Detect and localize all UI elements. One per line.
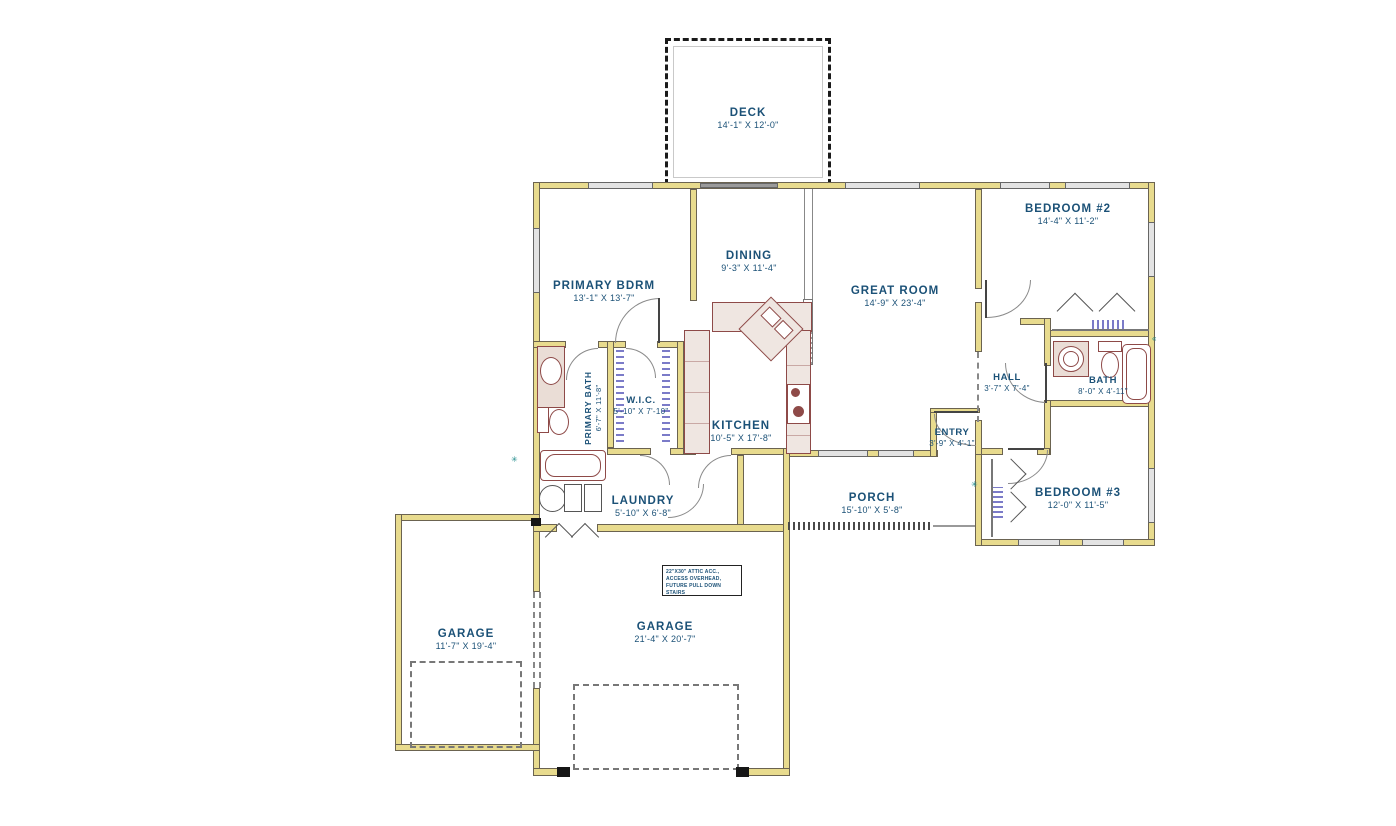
wall-kitchen-bottom-2 <box>731 448 790 455</box>
laundry-name: LAUNDRY <box>612 495 675 507</box>
bifold-door-bed2-left <box>1057 293 1094 330</box>
window-bedroom3-bottom-1 <box>1018 539 1060 546</box>
garage-left-name: GARAGE <box>436 628 497 640</box>
wall-garage1-top <box>395 514 540 521</box>
wall-wic-right <box>677 341 684 455</box>
water-heater <box>539 485 566 512</box>
primary-toilet-bowl <box>549 409 569 435</box>
label-entry: ENTRY 3'-9" X 4'-1" <box>929 427 975 448</box>
dining-name: DINING <box>721 250 776 262</box>
range-burner-1 <box>791 388 800 397</box>
bedroom3-name: BEDROOM #3 <box>1035 487 1121 499</box>
label-great-room: GREAT ROOM 14'-9" X 23'-4" <box>851 285 939 308</box>
primary-toilet-tank <box>537 407 549 433</box>
closet-hangers-bed3 <box>993 487 1003 518</box>
door-leaf-bedroom3 <box>1008 448 1044 450</box>
wall-greatroom-right-upper <box>975 189 982 289</box>
label-primary-bdrm: PRIMARY BDRM 13'-1" X 13'-7" <box>553 280 655 303</box>
wall-garage2-left-lower <box>533 688 540 775</box>
label-deck: DECK 14'-1" X 12'-0" <box>717 107 778 130</box>
bath-dims: 8'-0" X 4'-11" <box>1078 387 1128 396</box>
kitchen-name: KITCHEN <box>710 420 771 432</box>
wall-garage1-left <box>395 514 402 751</box>
entry-name: ENTRY <box>929 427 975 438</box>
window-bedroom2-right <box>1148 222 1155 277</box>
primary-tub-inner <box>545 454 601 477</box>
garage1-door-dashed <box>410 661 522 748</box>
washer <box>564 484 582 512</box>
dining-dims: 9'-3" X 11'-4" <box>721 263 776 273</box>
wall-wic-bottom-1 <box>607 448 651 455</box>
bedroom3-dims: 12'-0" X 11'-5" <box>1035 500 1121 510</box>
label-laundry: LAUNDRY 5'-10" X 6'-8" <box>612 495 675 518</box>
wall-hall-right-lower <box>1044 400 1051 455</box>
bath-sink-inner <box>1063 351 1079 367</box>
bath-toilet-tank <box>1098 341 1122 352</box>
wall-bedroom3-left <box>975 448 982 546</box>
electrical-symbol-3: « <box>1152 335 1156 343</box>
wall-cap-garage-door-right <box>736 767 749 777</box>
door-leaf-primary-bdrm <box>658 298 660 343</box>
laundry-dims: 5'-10" X 6'-8" <box>612 508 675 518</box>
garage2-door-dashed <box>573 684 739 770</box>
primary-bath-name: PRIMARY BATH <box>583 371 593 445</box>
electrical-symbol-2: ✳ <box>971 481 978 489</box>
wall-cap-garage-door-left <box>557 767 570 777</box>
bath-name: BATH <box>1078 375 1128 386</box>
primary-sink <box>540 357 562 385</box>
primary-bdrm-dims: 13'-1" X 13'-7" <box>553 293 655 303</box>
attic-note-box: 22"X30" ATTIC ACC., ACCESS OVERHEAD, FUT… <box>662 565 742 596</box>
label-bath: BATH 8'-0" X 4'-11" <box>1078 375 1128 396</box>
range-burner-2 <box>793 406 804 417</box>
door-leaf-bath <box>1045 363 1047 403</box>
door-leaf-entry <box>934 411 978 413</box>
window-bedroom2-top-1 <box>1000 182 1050 189</box>
door-arc-bedroom2 <box>987 280 1031 318</box>
door-arc-wic <box>626 348 656 378</box>
garage-right-name: GARAGE <box>634 621 695 633</box>
garage-left-dims: 11'-7" X 19'-4" <box>436 641 497 651</box>
wic-dims: 5'-10" X 7'-10" <box>613 407 668 416</box>
garage-right-dims: 21'-4" X 20'-7" <box>634 634 695 644</box>
wall-laundry-bottom-2 <box>597 524 784 532</box>
window-bedroom3-right <box>1148 468 1155 523</box>
label-hall: HALL 3'-7" X 7'-4" <box>984 372 1030 393</box>
window-porch-1 <box>818 450 868 457</box>
label-porch: PORCH 15'-10" X 5'-8" <box>841 492 902 515</box>
entry-dims: 3'-9" X 4'-1" <box>929 439 975 448</box>
garage-divider-dashed-1 <box>533 592 535 688</box>
step-chevron-2 <box>571 523 599 551</box>
great-room-dims: 14'-9" X 23'-4" <box>851 298 939 308</box>
deck-name: DECK <box>717 107 778 119</box>
wall-garage2-left-upper <box>533 531 540 592</box>
porch-edge-line <box>933 525 975 527</box>
kitchen-dims: 10'-5" X 17'-8" <box>710 433 771 443</box>
primary-bath-dims: 6'-7" X 11'-8" <box>594 371 603 445</box>
window-primary-top <box>588 182 653 189</box>
door-leaf-bedroom2 <box>985 280 987 318</box>
great-room-name: GREAT ROOM <box>851 285 939 297</box>
garage-divider-dashed-2 <box>539 592 541 688</box>
wall-hall-bottom-left <box>981 448 1003 455</box>
window-porch-2 <box>878 450 914 457</box>
label-bedroom2: BEDROOM #2 14'-4" X 11'-2" <box>1025 203 1111 226</box>
attic-note-line2: ACCESS OVERHEAD, <box>666 576 739 583</box>
deck-dims: 14'-1" X 12'-0" <box>717 120 778 130</box>
wall-greatroom-right-mid <box>975 302 982 352</box>
bedroom2-dims: 14'-4" X 11'-2" <box>1025 216 1111 226</box>
wall-primary-dining <box>690 189 697 301</box>
label-garage-left: GARAGE 11'-7" X 19'-4" <box>436 628 497 651</box>
floor-plan-canvas: ✳ ✳ « DECK 14'-1" X 12'-0" PRIMARY BDRM … <box>0 0 1396 826</box>
wic-name: W.I.C. <box>613 395 668 406</box>
label-bedroom3: BEDROOM #3 12'-0" X 11'-5" <box>1035 487 1121 510</box>
window-primary-left <box>533 228 540 293</box>
dryer <box>584 484 602 512</box>
wall-bedroom3-bottom <box>975 539 1155 546</box>
porch-dims: 15'-10" X 5'-8" <box>841 505 902 515</box>
wall-wic-bottom-2 <box>670 448 684 455</box>
closet-rod-bed2 <box>1052 329 1149 331</box>
attic-note-line1: 22"X30" ATTIC ACC., <box>666 569 739 576</box>
label-kitchen: KITCHEN 10'-5" X 17'-8" <box>710 420 771 443</box>
wall-bath-top <box>1050 330 1149 337</box>
wall-hall-right-upper <box>1044 318 1051 366</box>
window-bedroom3-bottom-2 <box>1082 539 1124 546</box>
hall-name: HALL <box>984 372 1030 383</box>
hall-dims: 3'-7" X 7'-4" <box>984 384 1030 393</box>
wall-laundry-right <box>737 455 744 531</box>
label-garage-right: GARAGE 21'-4" X 20'-7" <box>634 621 695 644</box>
electrical-symbol-1: ✳ <box>511 456 518 464</box>
porch-name: PORCH <box>841 492 902 504</box>
window-greatroom-top <box>845 182 920 189</box>
porch-edge-hatch <box>788 522 933 530</box>
attic-note-line3: FUTURE PULL DOWN STAIRS <box>666 583 739 597</box>
window-bedroom2-top-2 <box>1065 182 1130 189</box>
label-dining: DINING 9'-3" X 11'-4" <box>721 250 776 273</box>
kitchen-counter-left <box>684 330 710 454</box>
sliding-door-deck <box>700 183 778 188</box>
bath-tub-inner <box>1126 348 1147 400</box>
door-arc-wic-laundry <box>640 455 670 485</box>
wall-cap-laundry-left <box>531 518 541 526</box>
wall-garage-right <box>783 448 790 775</box>
bedroom2-name: BEDROOM #2 <box>1025 203 1111 215</box>
closet-hangers-bed2 <box>1092 320 1125 329</box>
door-arc-primary-bdrm <box>615 298 660 343</box>
cased-opening-dining-greatroom <box>804 189 813 299</box>
primary-bdrm-name: PRIMARY BDRM <box>553 280 655 292</box>
label-primary-bath: PRIMARY BATH 6'-7" X 11'-8" <box>583 371 603 445</box>
label-wic: W.I.C. 5'-10" X 7'-10" <box>613 395 668 416</box>
